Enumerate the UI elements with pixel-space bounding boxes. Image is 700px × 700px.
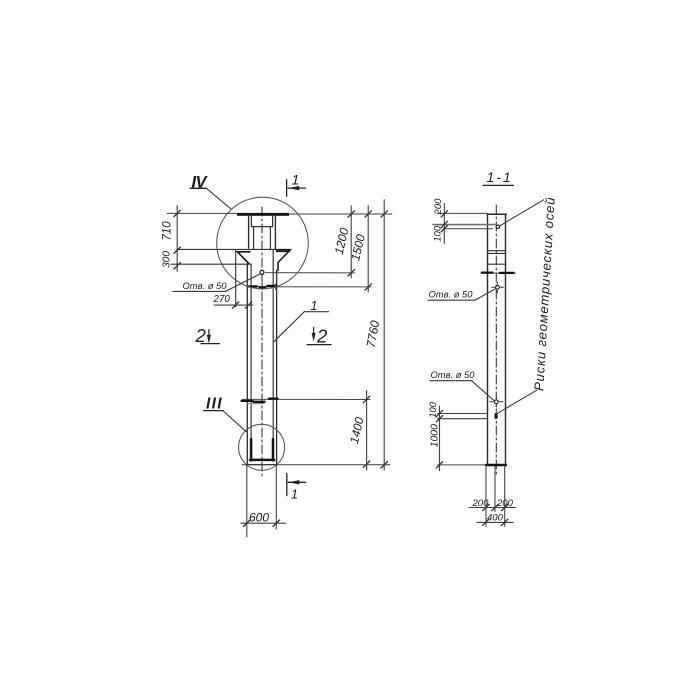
svg-text:1: 1 <box>292 172 300 188</box>
svg-text:1-1: 1-1 <box>487 169 513 185</box>
svg-text:1: 1 <box>291 488 298 502</box>
svg-text:100: 100 <box>432 225 443 242</box>
svg-text:200: 200 <box>472 498 490 509</box>
svg-text:600: 600 <box>249 511 269 525</box>
svg-text:270: 270 <box>213 294 231 305</box>
svg-text:7760: 7760 <box>364 319 383 349</box>
svg-text:Отв. ø 50: Отв. ø 50 <box>429 289 474 300</box>
svg-text:710: 710 <box>162 221 174 241</box>
svg-text:400: 400 <box>487 512 504 523</box>
svg-text:2: 2 <box>316 326 328 347</box>
svg-text:200: 200 <box>433 198 444 216</box>
svg-text:Отв. ø 50: Отв. ø 50 <box>431 369 476 380</box>
svg-text:1400: 1400 <box>347 416 367 445</box>
svg-text:Риски геометрических осей: Риски геометрических осей <box>531 196 558 391</box>
svg-text:1000: 1000 <box>428 424 440 448</box>
svg-text:100: 100 <box>428 401 439 418</box>
svg-text:300: 300 <box>162 251 173 268</box>
svg-text:200: 200 <box>496 498 514 509</box>
svg-text:1: 1 <box>311 299 318 313</box>
svg-text:Отв. ø 50: Отв. ø 50 <box>183 280 228 291</box>
svg-text:2: 2 <box>195 325 207 346</box>
svg-text:1200: 1200 <box>332 226 352 255</box>
